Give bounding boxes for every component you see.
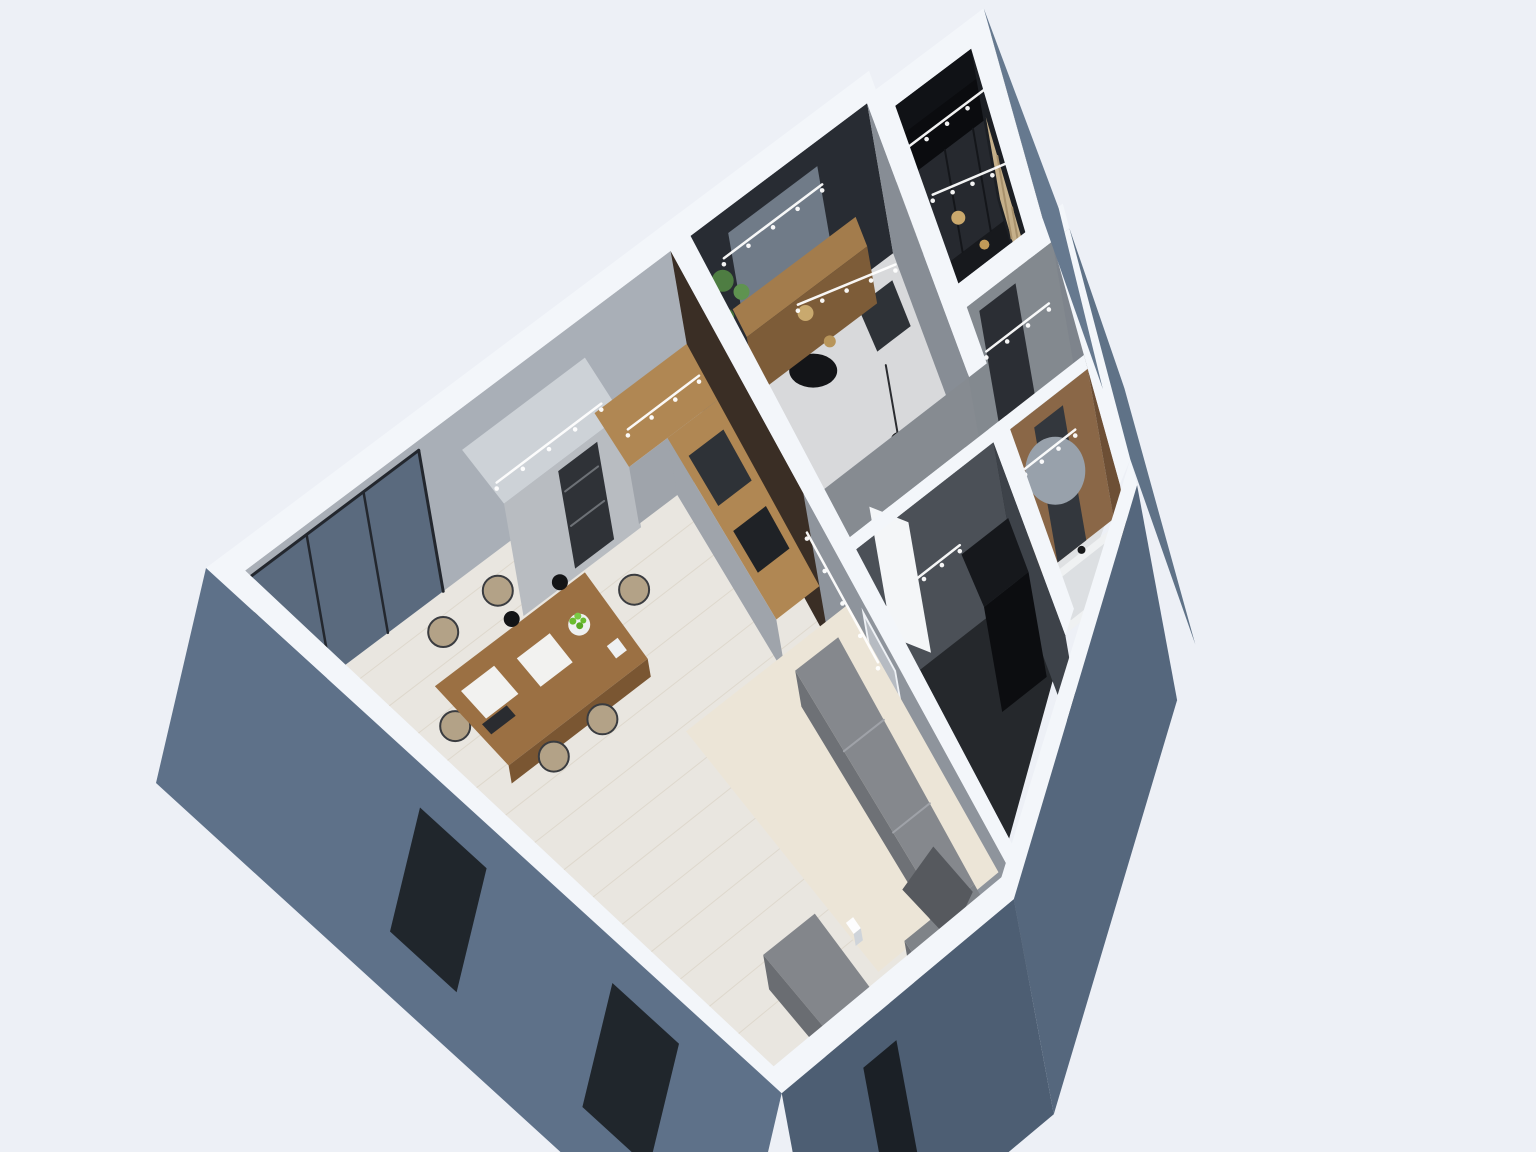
dining-pendant-lamp: [504, 611, 520, 627]
bathroom-faucet: [1078, 546, 1086, 554]
entry-plant-foliage: [734, 284, 750, 300]
closet-pendant-light: [951, 211, 965, 225]
dining-chair-seat: [428, 617, 458, 647]
bathroom-round-mirror: [1025, 437, 1085, 505]
dining-pendant-lamp: [552, 574, 568, 590]
dining-chair-seat: [587, 704, 617, 734]
floorplan-svg: [0, 0, 1536, 1152]
bowl-apple: [569, 618, 576, 625]
closet-pendant-light: [979, 240, 989, 250]
dining-chair-seat: [619, 575, 649, 605]
bowl-apple: [574, 613, 581, 620]
dining-chair-seat: [539, 742, 569, 772]
bowl-apple: [580, 618, 586, 624]
entry-pendant-light: [798, 305, 814, 321]
dining-chair-seat: [483, 576, 513, 606]
floor-plan-render: [0, 0, 1536, 1152]
entry-pendant-light: [824, 335, 836, 347]
